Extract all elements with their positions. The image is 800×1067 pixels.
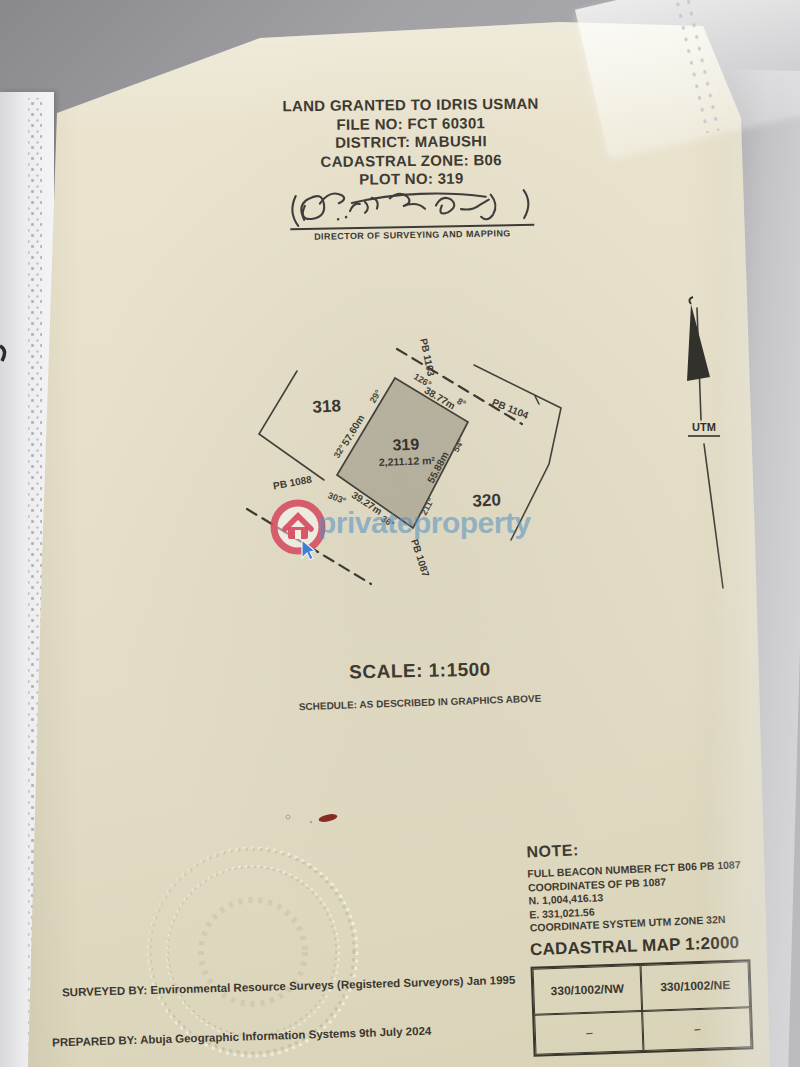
granted-to-line: LAND GRANTED TO IDRIS USMAN [248,94,574,116]
cadastral-cell-blank-1: --- [534,1011,643,1055]
signature-scrawl-icon [286,182,539,228]
document-header: LAND GRANTED TO IDRIS USMAN FILE NO: FCT… [248,94,575,190]
cadastral-cell-nw: 330/1002/NW [533,965,643,1015]
signature-block: DIRECTOR OF SURVEYING AND MAPPING [286,182,539,242]
sleeve-serration [669,0,728,134]
